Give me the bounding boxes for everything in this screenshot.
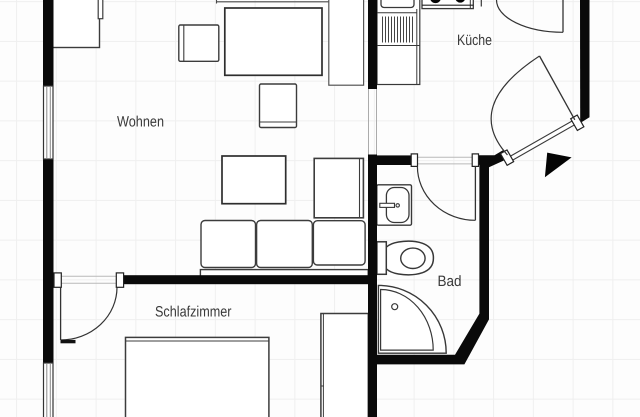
svg-text:Bad: Bad [438, 273, 462, 290]
svg-text:Schlafzimmer: Schlafzimmer [155, 304, 232, 321]
svg-text:Wohnen: Wohnen [117, 114, 164, 131]
svg-text:Küche: Küche [457, 32, 492, 49]
